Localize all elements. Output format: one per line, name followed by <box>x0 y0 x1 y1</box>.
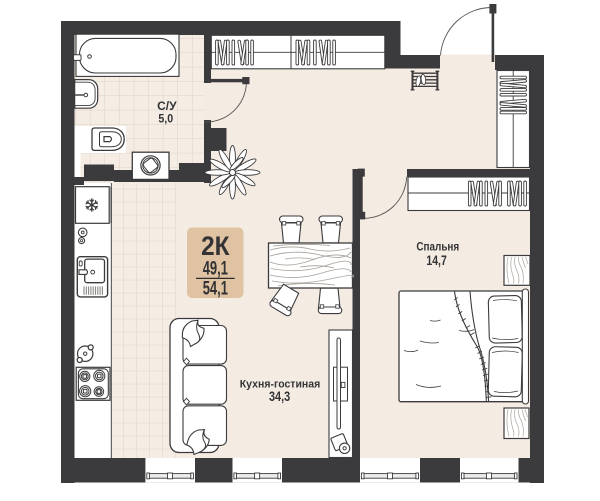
svg-text:34,3: 34,3 <box>269 388 290 404</box>
svg-text:14,7: 14,7 <box>426 252 447 268</box>
svg-text:54,1: 54,1 <box>203 278 228 300</box>
svg-text:49,1: 49,1 <box>203 258 228 280</box>
svg-text:5,0: 5,0 <box>158 112 173 126</box>
svg-text:2К: 2К <box>201 231 230 261</box>
